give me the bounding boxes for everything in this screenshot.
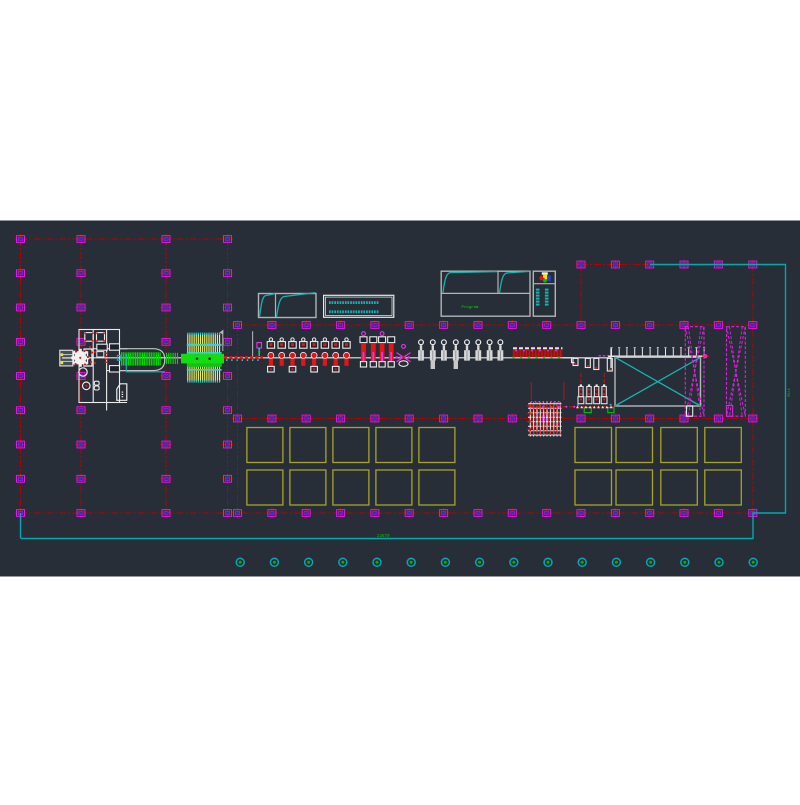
svg-text:23670: 23670 — [377, 535, 390, 539]
svg-text:4700: 4700 — [786, 388, 790, 397]
svg-text:Program: Program — [462, 305, 479, 310]
